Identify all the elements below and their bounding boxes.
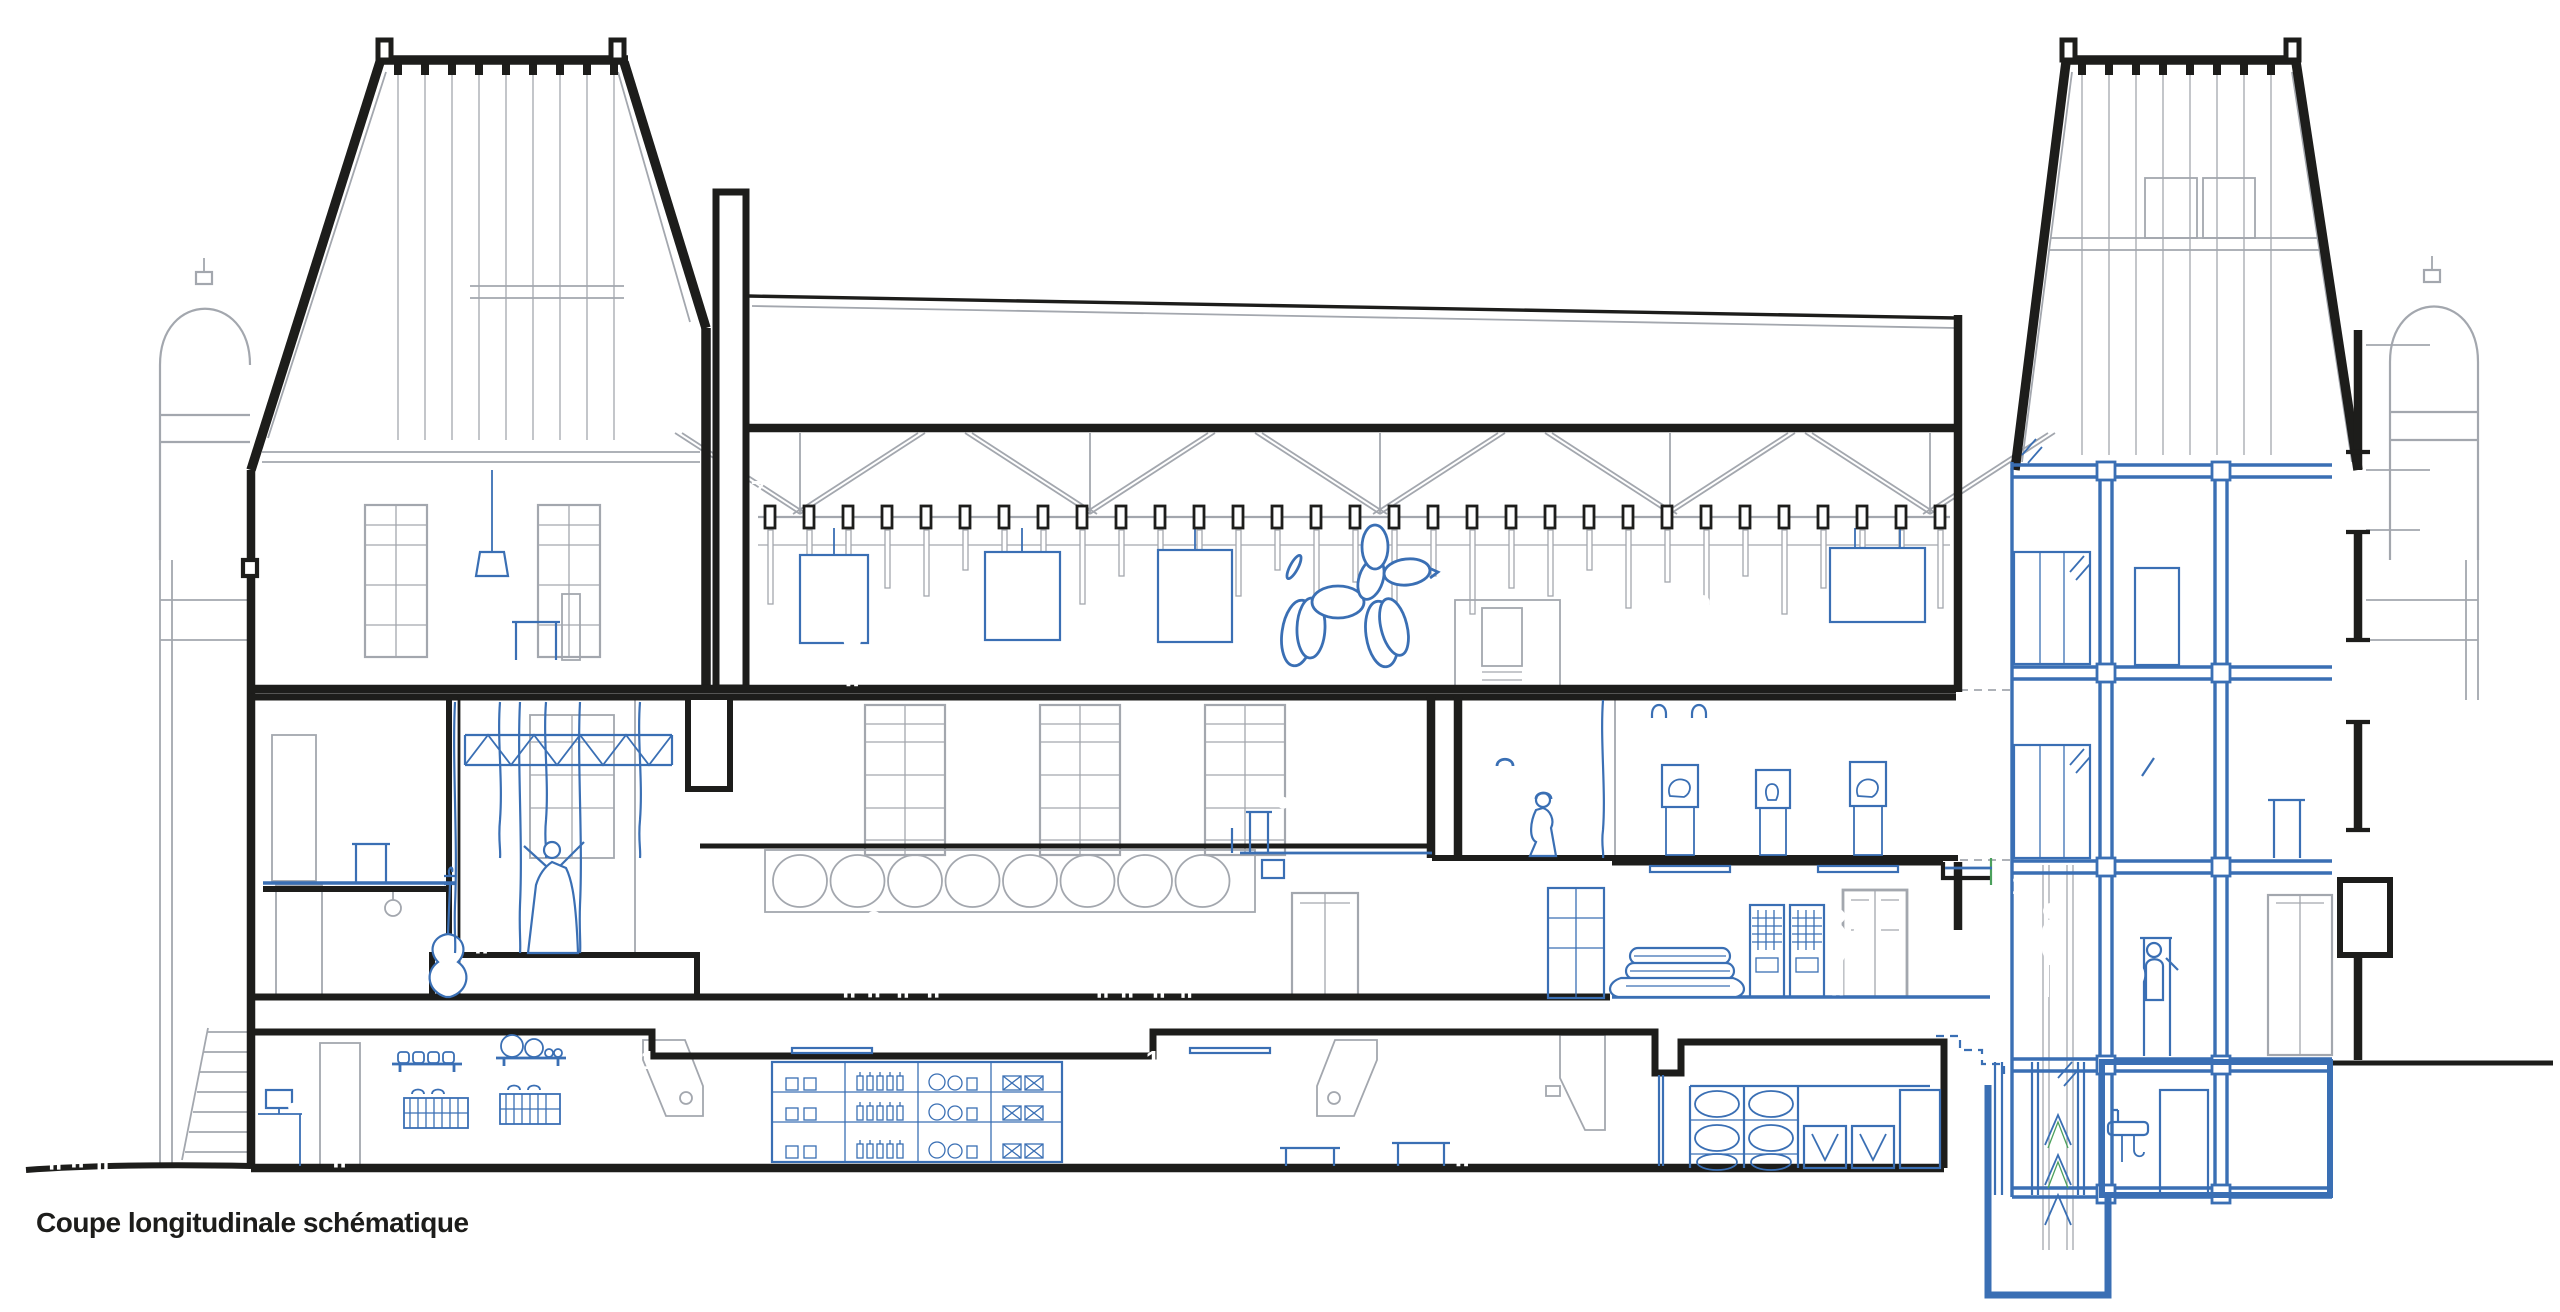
svg-text:16: 16 [2156,497,2185,527]
shop-shelf-unit [772,1062,1062,1162]
hall-figures [840,911,1194,998]
ceiling-light-bar [1650,866,1730,872]
wall-shelf [496,1035,566,1066]
ridge-post [2062,40,2075,60]
foyer-door [1843,890,1907,997]
crate [1852,1126,1894,1168]
left-roof-slope [251,62,380,470]
right-turret [2366,256,2478,700]
projector-duct [1560,1035,1605,1130]
pendant-lamp [476,552,508,576]
glazed-wall [1995,1062,2084,1195]
kneeling-worker [1530,793,1556,856]
left-roof-slope [624,62,706,328]
svg-text:7: 7 [751,475,765,505]
rope [639,702,641,858]
seated-figure [2247,755,2267,819]
cafe-table [1392,1143,1450,1166]
display-table [404,1090,468,1129]
standing-figure [1453,1077,1472,1166]
svg-text:11: 11 [1623,705,1651,735]
svg-text:16: 16 [2126,1087,2155,1117]
attic-desk [512,622,560,660]
display-table [500,1086,560,1125]
drawing-caption: Coupe longitudinale schématique [36,1207,469,1238]
svg-text:4: 4 [480,706,495,736]
svg-text:15: 15 [1911,1057,1940,1087]
left-roof-studs [394,62,618,440]
left-roof-tie [470,286,624,298]
elevator-pit [1988,1085,2108,1295]
curtain-line [454,702,456,953]
room13-figure [2041,903,2061,997]
artwork [1158,550,1232,642]
room5-upper-door [272,735,316,881]
wall-pipe [1659,1075,1663,1166]
pendant-lamp [385,900,401,916]
stage-house-door [530,715,614,858]
washroom-sink [2108,1110,2148,1162]
roof-panel [2145,178,2197,238]
room-marker-13: 13 [2003,862,2049,908]
vending-machine [1750,905,1784,997]
spotlight [680,1092,692,1104]
rope [499,702,501,858]
standing-figure [2305,763,2325,857]
glass-hatch [2058,1062,2078,1086]
drawing-canvas: 875436121151013916112151614 Coupe longit… [0,0,2560,1312]
gallery-roof-underline [752,306,1956,328]
room-marker-2: 2 [1611,1034,1657,1080]
ridge-post [611,40,624,60]
attic-ceiling-lines [262,452,700,462]
worker-figure [1495,761,1515,855]
svg-text:6: 6 [1398,707,1412,737]
ridge-post [2286,40,2299,60]
visitor-figure [1693,595,1712,684]
right-roof-tie [2050,238,2320,250]
foyer-figure [1853,905,1872,994]
gallery-roofline [748,296,1956,318]
exterior-figure [69,1083,87,1168]
seated-figure [1257,1123,1271,1167]
double-wall [1431,697,1458,858]
attic-easel [562,594,580,660]
cafe-table [1280,1148,1340,1166]
exterior-figure [94,1091,111,1170]
cornice-notch [243,560,257,576]
annex-window [2014,745,2090,858]
svg-text:5: 5 [407,915,421,945]
waving-figure [2125,758,2154,853]
svg-text:8: 8 [668,475,682,505]
svg-text:3: 3 [755,706,769,736]
rope [545,702,547,858]
ceiling-light-bar [792,1048,872,1053]
rope [1602,700,1604,858]
room-marker-6: 6 [1382,699,1428,745]
attic-window [365,505,427,657]
reception-desk [258,1090,302,1166]
foyer-lintel [1943,862,1992,878]
storage-cabinet [1900,1090,1940,1168]
tall-window [1205,705,1285,855]
vault-band [765,850,1255,912]
vending-machine [1790,905,1824,997]
roof-panel [2203,178,2255,238]
room-marker-5: 5 [399,698,445,744]
curtain-line [579,702,581,953]
exterior-stair [182,1028,250,1160]
seated-figure [397,815,418,882]
svg-text:14: 14 [2298,1087,2327,1117]
room-marker-3: 3 [739,698,785,744]
attic-window [538,505,600,657]
elevator-door [2268,895,2332,1055]
left-turret [160,258,250,1164]
ceiling-light-bar [1818,866,1898,872]
exterior-figure [46,1087,64,1170]
svg-text:1: 1 [1146,1045,1160,1075]
guest-figure [2166,943,2202,1056]
section-structure-layer [26,40,2553,1170]
svg-text:10: 10 [1620,867,1649,897]
stage-platform [432,955,697,997]
ceiling-hook [1692,705,1706,718]
right-roof-studs [2078,62,2275,455]
svg-text:12: 12 [1464,707,1493,737]
display-pedestal [1756,770,1790,855]
artwork [985,552,1060,640]
right-roof-slope [2015,62,2066,470]
visitor-figure [331,1083,349,1168]
right-roof-slope [2296,62,2358,470]
ridge-post [378,40,391,60]
annex-structural-frame [2012,462,2332,1203]
room-marker-1: 1 [625,1037,671,1083]
gallery-gable-wall [716,192,746,688]
projector [1546,1086,1560,1096]
svg-text:13: 13 [2012,870,2041,900]
svg-text:2: 2 [1627,1042,1641,1072]
svg-text:1: 1 [641,1045,655,1075]
room5-lower-door [276,885,322,997]
room-marker-16: 16 [2147,489,2193,535]
proscenium-wall [688,697,730,789]
stage-figure [473,869,491,954]
architectural-section-drawing: 875436121151013916112151614 Coupe longit… [0,0,2560,1312]
crate [1804,1126,1846,1168]
room-marker-16: 16 [2117,1079,2163,1125]
svg-text:5: 5 [415,706,429,736]
seated-figure [1373,1121,1387,1165]
room-marker-8: 8 [652,467,698,513]
hall-door [1292,893,1358,995]
roof-trusses [675,433,2055,514]
ceiling-light-bar [1190,1048,1270,1053]
artwork [1830,548,1925,622]
desk [352,844,390,882]
washroom-door [2160,1090,2208,1195]
room-marker-11: 11 [1614,697,1660,743]
ceiling-hook [1652,705,1666,718]
counter-staff [2146,943,2163,1000]
connector-dashes [1960,690,2010,860]
curtain-line [519,702,521,953]
annex-window [2014,552,2090,664]
tall-window [865,705,945,855]
togo-sofa [1610,948,1744,997]
right-window-box [2340,880,2390,955]
window-jambs [2346,452,2370,912]
wall-shelf [392,1052,462,1072]
light-duct [1317,1040,1377,1116]
spotlight [1328,1092,1340,1104]
display-pedestal [1662,765,1698,855]
svg-text:9: 9 [2131,960,2145,990]
tall-window [1040,705,1120,855]
annex-door [2135,568,2179,665]
annex-table [2268,800,2306,858]
glazed-door [1548,888,1604,998]
display-pedestal [1850,762,1886,855]
hoist-box [1262,860,1284,878]
